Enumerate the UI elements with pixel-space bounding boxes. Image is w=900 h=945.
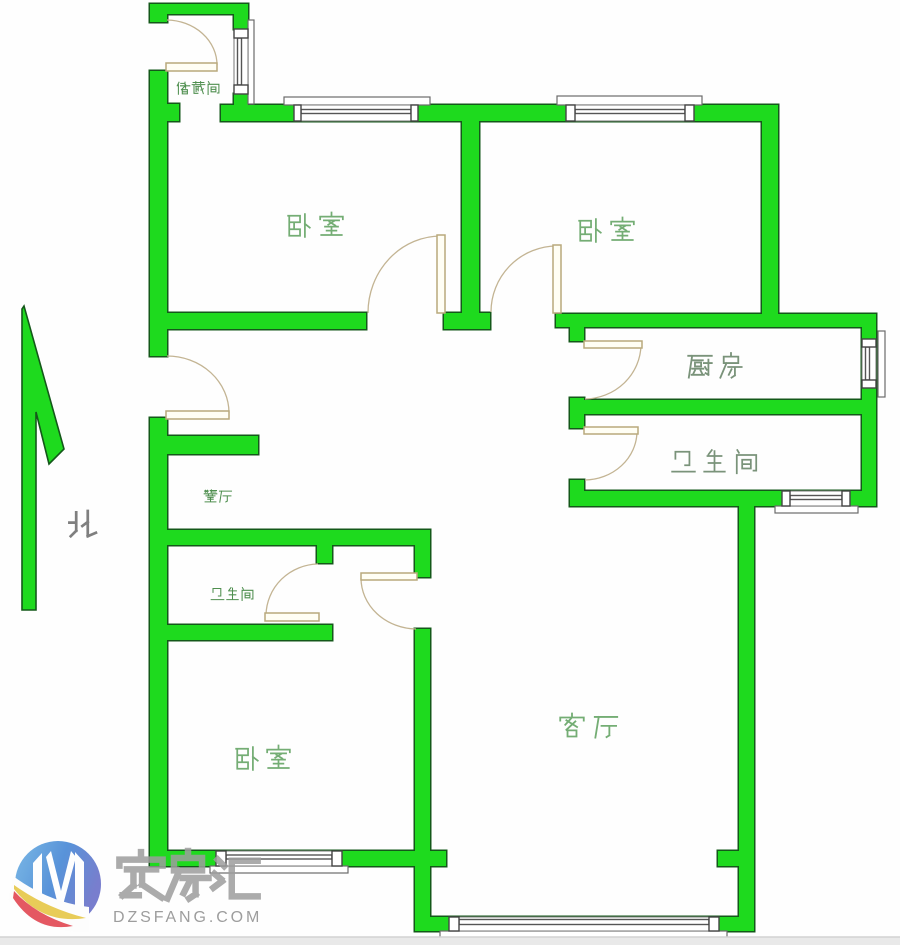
- svg-text:DZSFANG.COM: DZSFANG.COM: [113, 909, 262, 926]
